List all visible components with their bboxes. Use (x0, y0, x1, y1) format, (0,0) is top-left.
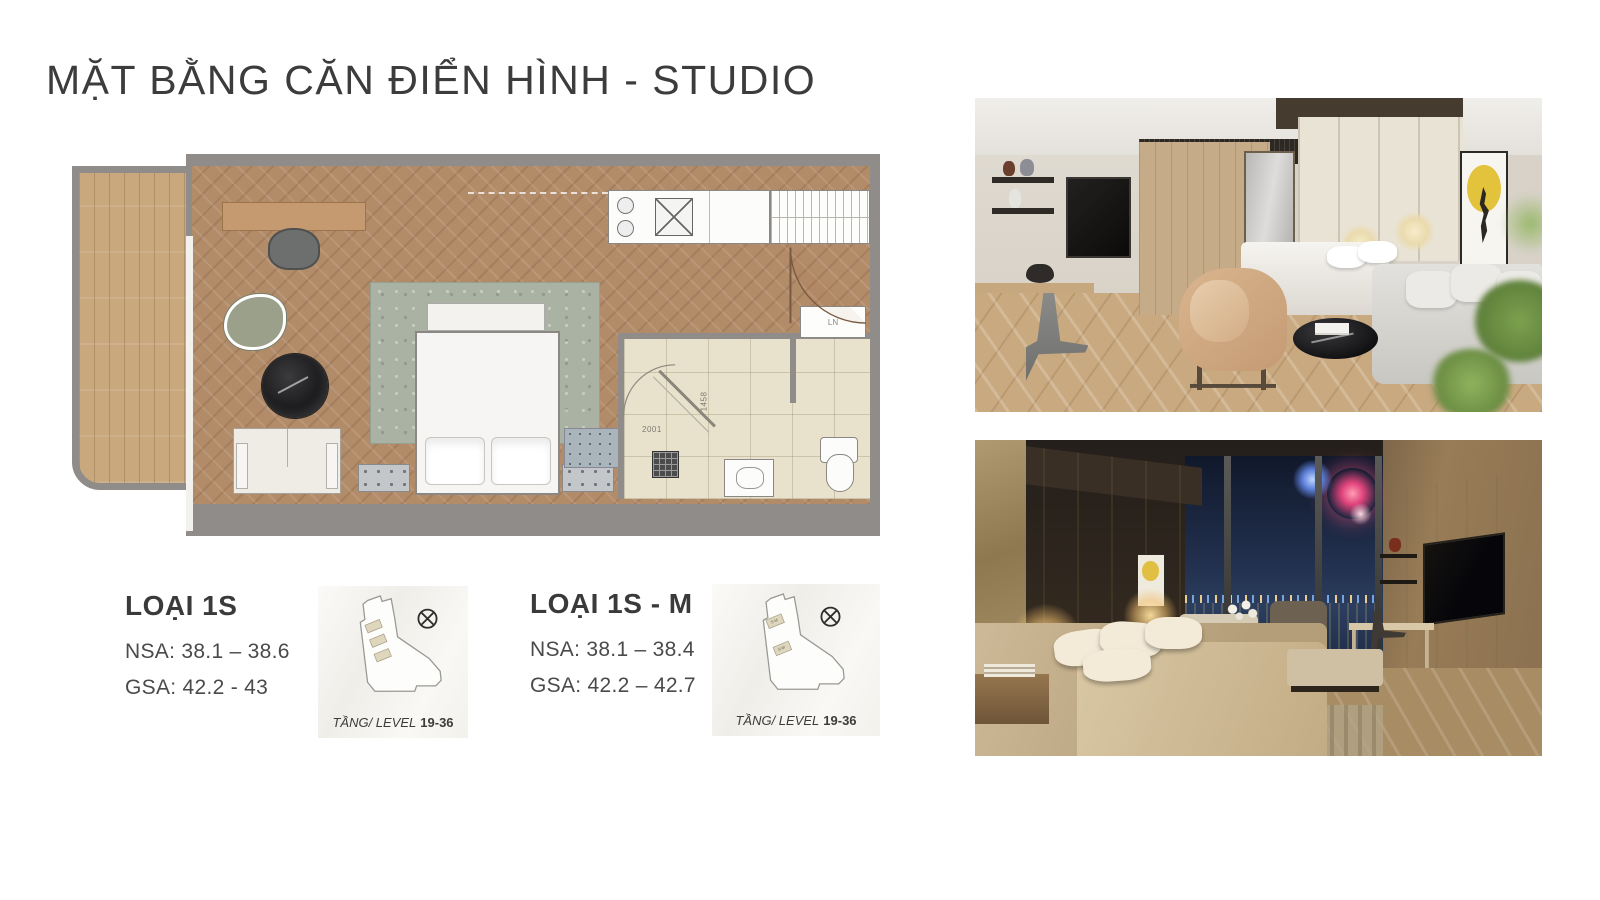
leather-armchair (1179, 268, 1287, 372)
toilet-partition-wall (790, 339, 796, 403)
shower-drain-icon (652, 451, 679, 478)
tv-screen (1423, 532, 1505, 626)
page-title: MẶT BẰNG CĂN ĐIỂN HÌNH - STUDIO (46, 57, 816, 104)
counter-divider (709, 191, 710, 243)
keyplan-caption: TẦNG/ LEVEL19-36 (735, 713, 856, 728)
unit-name: LOẠI 1S - M (530, 588, 696, 620)
round-coffee-table (262, 354, 328, 418)
cooktop-burner-icon (617, 220, 634, 237)
keyplan-1s-m: S-M S-M TẦNG/ LEVEL19-36 (712, 584, 880, 736)
wall-shelf (992, 208, 1054, 214)
keyplan-levels: 19-36 (823, 713, 856, 728)
fireworks-small (1349, 503, 1372, 525)
decor-vase (1009, 189, 1021, 208)
table-books (1315, 323, 1349, 334)
kitchen-sink-icon (655, 198, 693, 236)
unit-name: LOẠI 1S (125, 590, 290, 622)
interior-render-day (975, 98, 1542, 412)
nightstand-right (562, 464, 614, 492)
kitchen-counter (608, 190, 770, 244)
wall-shelf (1380, 554, 1417, 558)
desk-bowl (1026, 264, 1054, 283)
plant-blur (1502, 192, 1542, 255)
dimension-label-height: 1458 (699, 392, 708, 412)
desk (222, 202, 366, 231)
unit-gsa: GSA: 42.2 – 42.7 (530, 674, 696, 698)
wall-shelf (992, 177, 1054, 183)
upper-cabinet-dashed-line (468, 192, 608, 194)
unit-info-1s-m: LOẠI 1S - M NSA: 38.1 – 38.4 GSA: 42.2 –… (530, 588, 696, 698)
bathroom: 2001 1458 (618, 333, 870, 499)
nightstand-left (358, 464, 410, 492)
floorplan-unit-walls: 2001 1458 LN (186, 154, 880, 536)
bed-pillow (1358, 241, 1398, 263)
unit-nsa: NSA: 38.1 – 38.6 (125, 640, 290, 664)
bed-end-bench (427, 303, 545, 331)
keyplan-outline (318, 586, 468, 704)
vanity-sink (724, 459, 774, 497)
lounge-armchair (224, 294, 286, 350)
desk-top (975, 283, 1094, 292)
keyplan-1s: TẦNG/ LEVEL19-36 (318, 586, 468, 738)
dimension-label-width: 2001 (642, 425, 662, 434)
compass-icon (821, 608, 839, 626)
floorplan-living-floor: 2001 1458 LN (192, 166, 870, 504)
desk-chair (268, 228, 320, 270)
bed-pillow (1145, 617, 1202, 649)
tv-screen (1066, 177, 1131, 259)
keyplan-outline: S-M S-M (712, 584, 880, 702)
floorplan-balcony (72, 166, 204, 490)
pillow (491, 437, 551, 485)
compass-icon (418, 610, 436, 628)
fireworks-blue (1293, 459, 1333, 500)
sofa-seam (287, 429, 288, 467)
unit-gsa: GSA: 42.2 - 43 (125, 676, 290, 700)
flower-bouquet (1219, 598, 1264, 626)
keyplan-levels: 19-36 (420, 715, 453, 730)
keyplan-caption: TẦNG/ LEVEL19-36 (332, 715, 453, 730)
decor-vase (1003, 161, 1014, 177)
balcony-door-line (186, 236, 193, 436)
bed-end-bench (1287, 649, 1383, 687)
sofa-pillow (1406, 271, 1457, 309)
plant-blur (1429, 349, 1514, 412)
decor-vase (1020, 159, 1034, 176)
keyplan-caption-text: TẦNG/ LEVEL (332, 715, 416, 730)
sofa (233, 428, 341, 494)
wall-lamp-glow (1395, 211, 1435, 252)
unit-nsa: NSA: 38.1 – 38.4 (530, 638, 696, 662)
washer-box: LN (800, 306, 866, 338)
cooktop-burner-icon (617, 197, 634, 214)
toilet (820, 437, 858, 463)
wall-art (1460, 151, 1508, 267)
interior-render-night (975, 440, 1542, 756)
brochure-slide: MẶT BẰNG CĂN ĐIỂN HÌNH - STUDIO (0, 0, 1600, 900)
unit-info-1s: LOẠI 1S NSA: 38.1 – 38.6 GSA: 42.2 - 43 (125, 590, 290, 700)
pillow (425, 437, 485, 485)
double-bed (415, 331, 560, 495)
entry-wardrobe (770, 190, 870, 244)
keyplan-caption-text: TẦNG/ LEVEL (735, 713, 819, 728)
stacked-books (984, 664, 1035, 677)
floorplan: 2001 1458 LN (70, 152, 882, 540)
headboard-panels (1298, 117, 1462, 261)
entry-mat (564, 428, 624, 468)
nightstand (975, 674, 1049, 725)
